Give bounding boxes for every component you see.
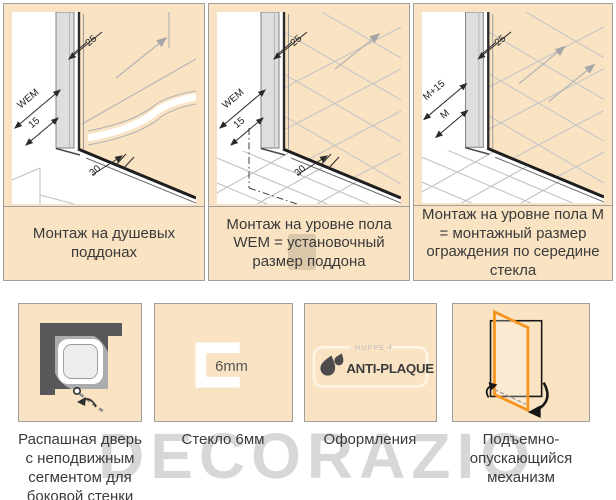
feature-box-lift-mechanism [452,303,590,422]
diagram-frame: 25 M+15 M [414,4,612,205]
installation-diagram-shower-tray: 25 WEM 15 30 [12,12,196,204]
feature-box-swing-door [18,303,142,422]
diagram-frame: 25 WEM 15 30 [209,4,409,206]
pivot-point [74,387,80,393]
diagram-frame: 25 WEM 15 30 [4,4,204,206]
brand-label: HUPPE [355,343,385,352]
panel-caption: Монтаж на уровне пола WEM = установочный… [220,216,398,272]
panel-caption: Монтаж на душевых поддонах [17,225,192,262]
panel-tray-installation: 25 WEM 15 30 Монтаж на душевых поддонах [3,3,205,281]
wall-profile [56,12,74,148]
profile-base [56,149,80,156]
glass-thickness-icon: 6mm [155,304,292,421]
feature-box-anti-plaque: HUPPE ANTI-PLAQUE [304,303,437,422]
lift-lower-door-icon [453,304,589,421]
dimension-label-15: 15 [232,115,248,131]
caption-cell: Монтаж на душевых поддонах [4,206,204,280]
tilted-door-panel [494,312,527,410]
water-drop-small [333,352,346,367]
panel-floor-level-m: 25 M+15 M Монтаж на уровне пола М = монт… [413,3,613,281]
panel-caption: Монтаж на уровне пола М = монтажный разм… [420,206,606,280]
feature-caption-swing-door: Распашная дверь с неподвижным сегментом … [15,430,145,500]
tray-corner-lines [12,168,74,204]
caption-cell: Монтаж на уровне пола М = монтажный разм… [414,205,612,280]
swing-arrow-head [77,397,86,406]
dimension-label-15: 15 [27,115,43,131]
glass-thickness-label: 6mm [215,359,248,375]
water-drop-large [319,353,339,377]
profile-base [466,148,490,154]
wall-profile [466,12,484,147]
feature-caption-glass: Стекло 6мм [158,430,288,449]
logo-label: ANTI-PLAQUE [346,361,434,376]
swing-door-top-view-icon [30,311,130,415]
dimension-label-m-plus-15: M+15 [422,78,448,103]
caption-cell: Монтаж на уровне пола WEM = установочный… [209,206,409,280]
anti-plaque-logo: HUPPE ANTI-PLAQUE [305,304,436,421]
dimension-label-wem: WEM [220,87,246,111]
feature-caption-finishes: Оформления [300,430,440,449]
wall-profile [261,12,279,148]
product-spec-sheet: 25 WEM 15 30 Монтаж на душевых поддонах [0,0,616,500]
installation-diagram-floor-m: 25 M+15 M [422,12,604,203]
tray-inner [64,344,98,378]
dimension-label-m: M [438,108,451,122]
panel-floor-level-wem: 25 WEM 15 30 Монтаж на уровне пола WEM =… [208,3,410,281]
dimension-label-wem: WEM [15,87,41,111]
profile-base [261,149,285,156]
feature-caption-lift-mechanism: Подъемно-опускающийся механизм [465,430,577,487]
feature-box-glass: 6mm [154,303,293,422]
installation-diagram-floor-wem: 25 WEM 15 30 [217,12,401,204]
dimension-label-30: 30 [88,163,104,179]
big-rotate-arrow-head [528,405,541,418]
